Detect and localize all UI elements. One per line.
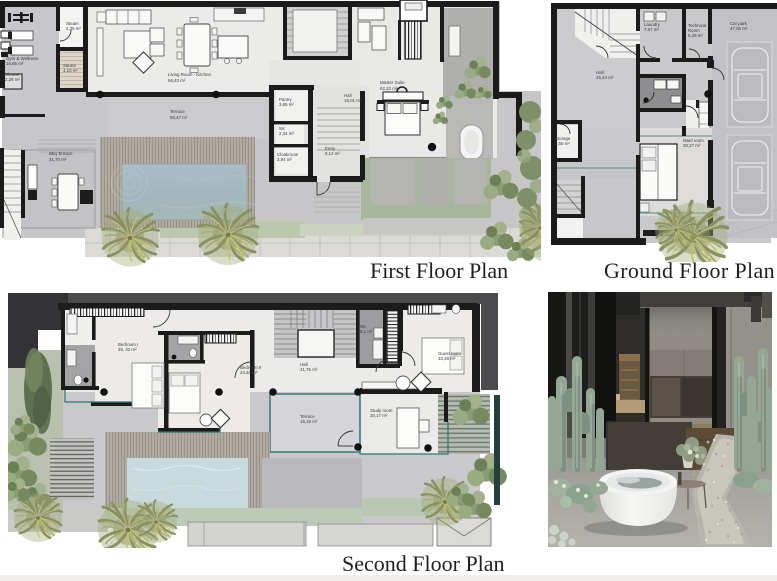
svg-text:20,17 m²: 20,17 m² — [370, 413, 388, 418]
svg-text:15,01 m²: 15,01 m² — [344, 98, 362, 103]
svg-text:8,14 m²: 8,14 m² — [325, 151, 340, 156]
svg-text:55,47 m²: 55,47 m² — [170, 115, 188, 120]
svg-text:2,28 m²: 2,28 m² — [5, 77, 20, 82]
svg-text:4,36 m²: 4,36 m² — [66, 26, 81, 31]
svg-text:Terrace: Terrace — [170, 109, 185, 114]
svg-text:Bbq Terrace: Bbq Terrace — [49, 151, 73, 156]
svg-text:6,1 m²: 6,1 m² — [360, 329, 373, 334]
svg-text:4,10 m²: 4,10 m² — [63, 68, 78, 73]
svg-text:21,70 m²: 21,70 m² — [49, 157, 67, 162]
svg-text:35, 32 m²: 35, 32 m² — [118, 347, 137, 352]
svg-text:33,48 m²: 33,48 m² — [438, 356, 456, 361]
svg-text:2,34 m²: 2,34 m² — [279, 131, 294, 136]
svg-text:41,75 m²: 41,75 m² — [300, 367, 318, 372]
svg-text:62,22 m²: 62,22 m² — [380, 86, 398, 91]
svg-text:3,85 m²: 3,85 m² — [279, 102, 294, 107]
svg-text:3,55 m²: 3,55 m² — [555, 141, 570, 146]
svg-text:25,44 m²: 25,44 m² — [596, 75, 614, 80]
svg-text:47,06 m²: 47,06 m² — [730, 26, 748, 31]
svg-text:16,65 m²: 16,65 m² — [6, 61, 24, 66]
svg-text:Master Suite: Master Suite — [380, 80, 405, 85]
svg-text:Living Room - Kitchen: Living Room - Kitchen — [168, 72, 212, 77]
svg-text:16,18 m²: 16,18 m² — [300, 419, 318, 424]
svg-text:30,27 m²: 30,27 m² — [683, 143, 701, 148]
svg-text:24,40 m²: 24,40 m² — [240, 370, 258, 375]
svg-text:3,94 m²: 3,94 m² — [277, 157, 292, 162]
svg-text:66,43 m²: 66,43 m² — [168, 78, 186, 83]
svg-text:7,67 m²: 7,67 m² — [644, 27, 659, 32]
svg-text:6,49 m²: 6,49 m² — [688, 33, 703, 38]
